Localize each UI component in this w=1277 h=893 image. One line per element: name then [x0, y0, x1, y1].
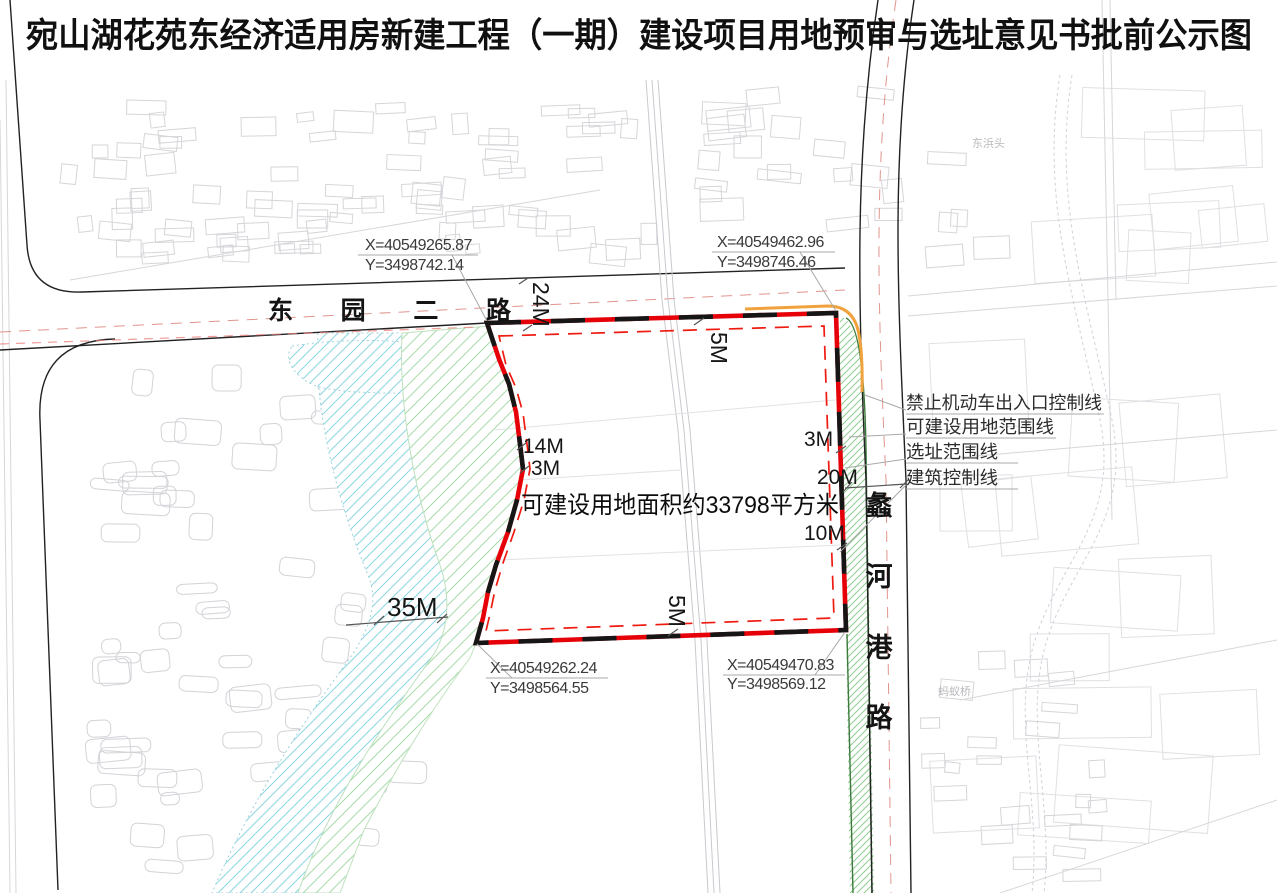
coord-bl-x: X=40549262.24	[490, 660, 598, 677]
legend: 禁止机动车出入口控制线 可建设用地范围线 选址范围线 建筑控制线	[906, 393, 1102, 488]
road-char-gang: 港	[866, 633, 894, 663]
road-label-dongyuan: 东园二路	[268, 296, 512, 325]
legend-item-buildable-range-line: 可建设用地范围线	[906, 417, 1054, 437]
base-map-field-lines	[0, 0, 1277, 893]
planning-map: 宛山湖花苑东经济适用房新建工程（一期）建设项目用地预审与选址意见书批前公示图 X…	[0, 0, 1277, 893]
coord-br-y: Y=3498569.12	[727, 676, 826, 693]
coord-bl-y: Y=3498564.55	[490, 680, 589, 697]
bridge-label-mayiqiao: 蚂蚁桥	[938, 685, 971, 698]
map-canvas: 宛山湖花苑东经济适用房新建工程（一期）建设项目用地预审与选址意见书批前公示图 X…	[0, 0, 1277, 893]
village-label-dongbangtou: 东浜头	[972, 137, 1005, 150]
coord-tr-y: Y=3498746.46	[717, 254, 816, 271]
road-char-li: 蠡	[866, 490, 893, 521]
dim-14m-label: 14M	[523, 435, 564, 458]
coord-tr-x: X=40549462.96	[717, 234, 825, 251]
dim-35m-label: 35M	[387, 592, 438, 622]
road-char-lu: 路	[866, 702, 894, 733]
coord-tl-x: X=40549265.87	[365, 237, 473, 254]
dim-20m-label: 20M	[817, 466, 858, 489]
legend-item-no-vehicle-line: 禁止机动车出入口控制线	[906, 393, 1102, 413]
coord-tl-y: Y=3498742.14	[365, 257, 464, 274]
dim-3m-left-label: 3M	[531, 457, 560, 480]
dim-5m-bottom-label: 5M	[664, 595, 690, 627]
dim-24m-label: 24M	[528, 282, 554, 327]
map-title: 宛山湖花苑东经济适用房新建工程（一期）建设项目用地预审与选址意见书批前公示图	[26, 16, 1252, 55]
legend-item-building-control-line: 建筑控制线	[906, 468, 998, 488]
road-char-he: 河	[866, 562, 893, 592]
coord-br-x: X=40549470.83	[727, 657, 835, 674]
stream-east	[1025, 75, 1116, 893]
dim-3m-right-label: 3M	[804, 428, 833, 451]
legend-item-site-selection-line: 选址范围线	[906, 442, 998, 462]
road-lihegang-centerline	[879, 0, 896, 893]
site-interior-lines	[495, 400, 840, 560]
dim-10m-label: 10M	[804, 522, 845, 545]
buildable-area-label: 可建设用地面积约33798平方米	[521, 492, 839, 519]
base-map-parcels	[60, 86, 1268, 881]
dim-5m-top-label: 5M	[706, 332, 732, 364]
